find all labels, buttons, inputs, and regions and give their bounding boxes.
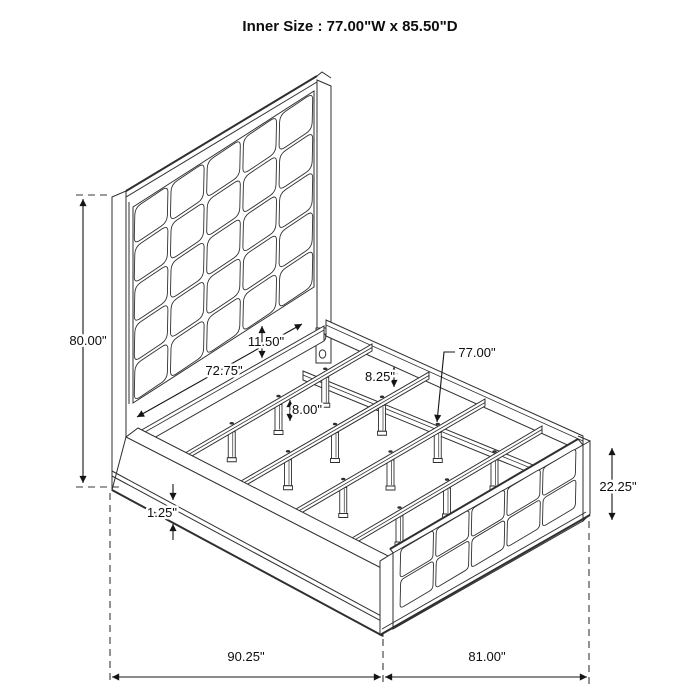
slat-leg-foot [274, 431, 283, 435]
slat-leg [322, 377, 329, 403]
screw-dot [380, 395, 384, 398]
screw-dot [323, 367, 327, 370]
screw-dot [436, 423, 440, 426]
dimension-label: 1.25" [147, 505, 177, 520]
slat-edge [296, 403, 485, 513]
footboard-right-post [583, 441, 590, 521]
screw-dot [492, 450, 496, 453]
dimension-leg-height: 8.00" [290, 400, 322, 421]
slat-leg-foot [433, 459, 442, 463]
dimension-label: 77.00" [458, 345, 496, 360]
slat-leg-foot [378, 431, 387, 435]
slat-leg-foot [339, 514, 348, 518]
dimension-footboard-height: 22.25" [599, 448, 637, 520]
screw-dot [397, 506, 401, 509]
slat-leg [444, 488, 451, 514]
slat-leg [285, 460, 292, 486]
dimension-label: 8.00" [292, 402, 322, 417]
screw-dot [333, 423, 337, 426]
page-title: Inner Size : 77.00"W x 85.50"D [242, 18, 457, 35]
dimension-label: 72.75" [205, 363, 243, 378]
dimension-label: 90.25" [227, 649, 265, 664]
headboard [112, 72, 331, 490]
slat-leg [396, 516, 403, 542]
screw-dot [445, 478, 449, 481]
footboard-left-post [380, 553, 393, 635]
back-side-rail [326, 320, 583, 452]
dimension-headboard-height: 80.00" [69, 199, 107, 483]
slat-leg-foot [227, 458, 236, 462]
dimension-overall-depth: 90.25" [112, 649, 381, 677]
slat-leg [387, 460, 394, 486]
headboard-right-post-cap [317, 72, 331, 78]
slat-leg [332, 433, 339, 459]
dimension-label: 22.25" [599, 479, 637, 494]
screw-dot [230, 422, 234, 425]
dimension-overall-width: 81.00" [385, 649, 587, 677]
slat-leg [379, 405, 386, 431]
diagram-canvas: Inner Size : 77.00"W x 85.50"D [0, 0, 700, 700]
slat-leg [434, 433, 441, 459]
dimension-rail-height: 8.25" [365, 367, 395, 387]
screw-dot [276, 395, 280, 398]
dimension-label: 11.50" [248, 334, 285, 349]
screw-dot [341, 478, 345, 481]
dimension-label: 8.25" [365, 369, 395, 384]
bed-dimension-diagram: Inner Size : 77.00"W x 85.50"D [0, 0, 700, 700]
slat-leg-foot [284, 486, 293, 490]
dimension-label: 80.00" [69, 333, 107, 348]
headboard-right-post [317, 80, 331, 330]
slat-leg [340, 488, 347, 514]
slat-leg-foot [386, 486, 395, 490]
slat-leg-foot [331, 459, 340, 463]
slat-leg [491, 460, 498, 486]
screw-dot [388, 450, 392, 453]
slat-leg [275, 405, 282, 431]
screw-dot [286, 450, 290, 453]
slat-leg-foot [321, 403, 330, 407]
slat-leg [228, 432, 235, 458]
dimension-label: 81.00" [468, 649, 506, 664]
